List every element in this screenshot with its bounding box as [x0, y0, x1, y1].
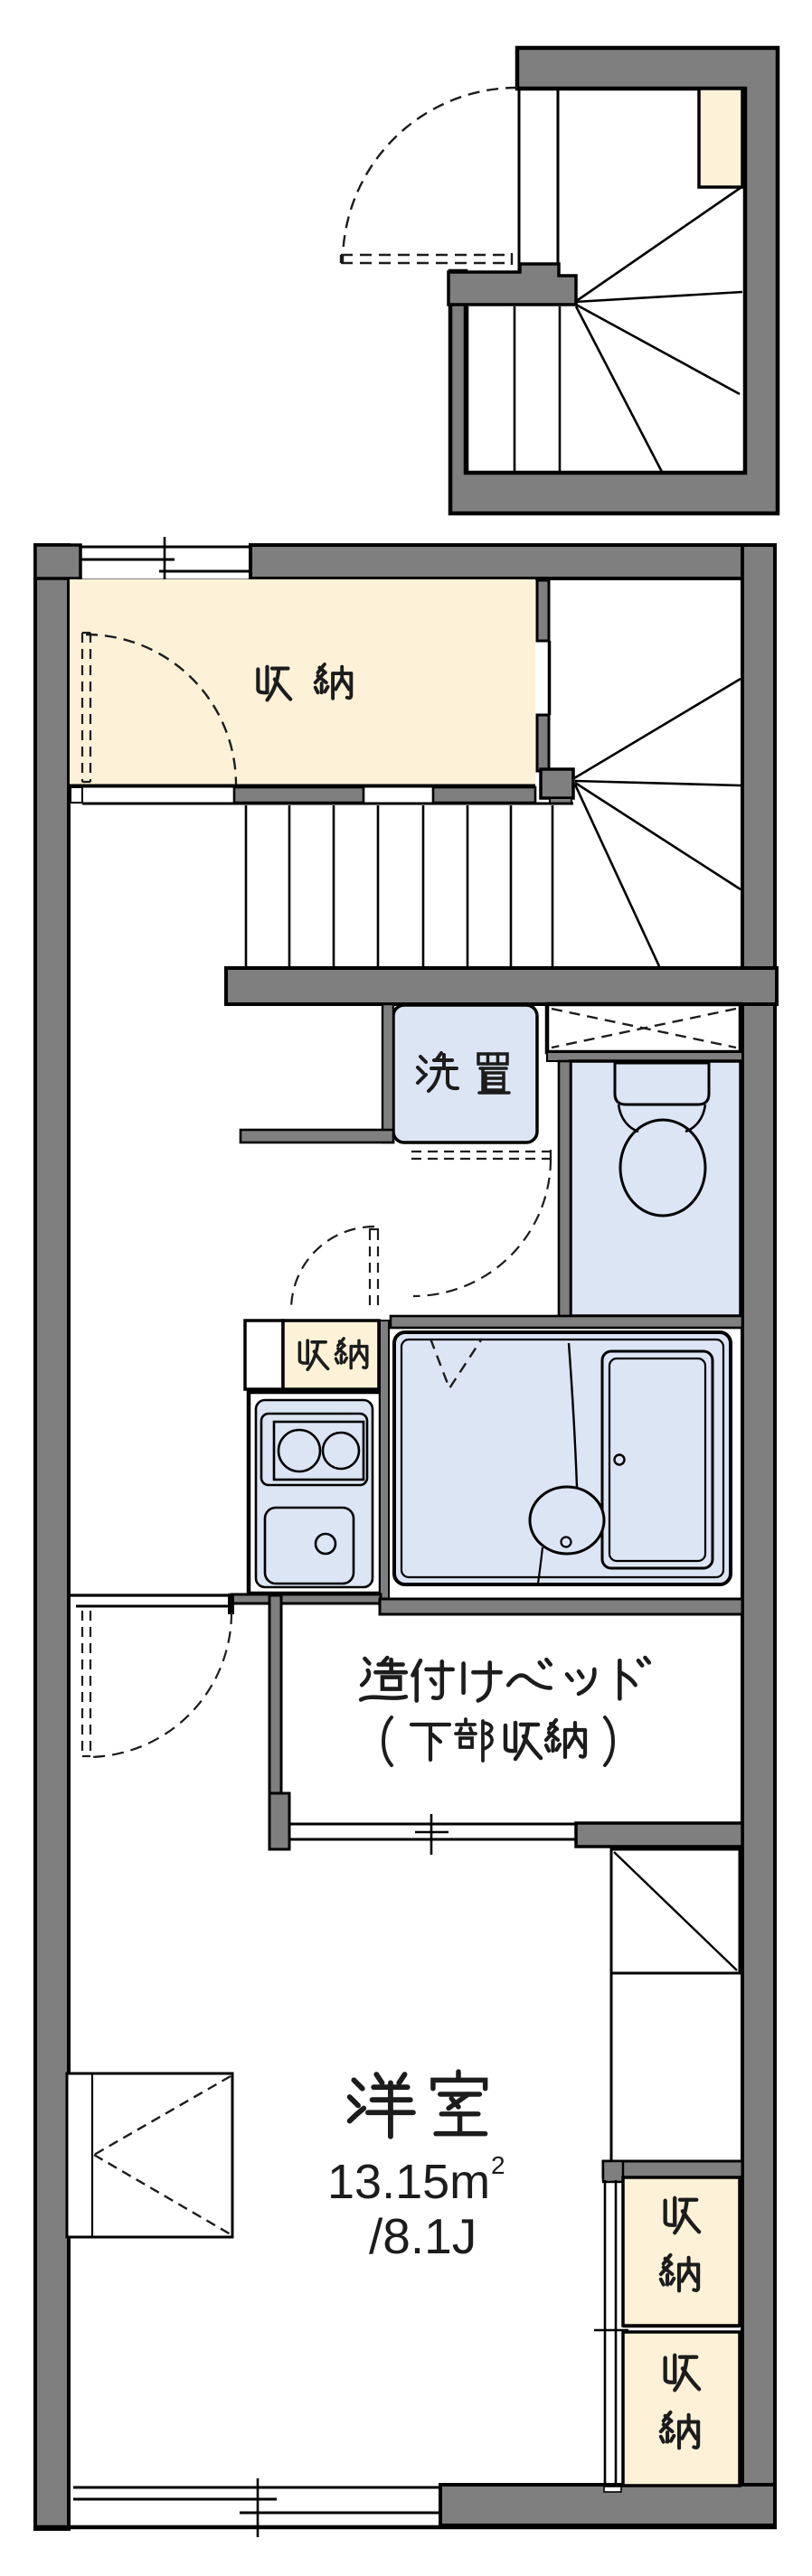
svg-text:/8.1J: /8.1J: [369, 2208, 477, 2264]
svg-text:2: 2: [491, 2151, 505, 2179]
svg-text:13.15m: 13.15m: [327, 2155, 490, 2209]
